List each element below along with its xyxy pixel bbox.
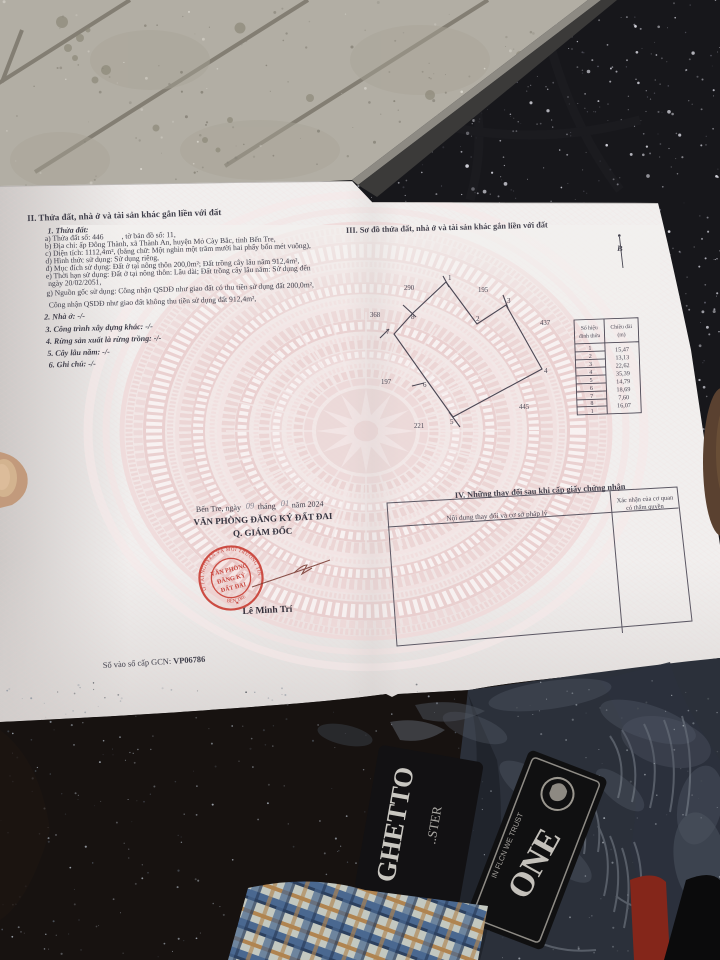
- svg-text:16,07: 16,07: [617, 402, 631, 409]
- svg-text:195: 195: [478, 287, 489, 294]
- svg-text:4: 4: [544, 367, 548, 375]
- svg-text:5: 5: [590, 378, 593, 384]
- svg-text:6: 6: [423, 381, 427, 389]
- svg-text:Chiều dài: Chiều dài: [610, 323, 632, 331]
- svg-text:8: 8: [411, 313, 415, 321]
- svg-text:445: 445: [519, 404, 530, 411]
- svg-text:7: 7: [386, 328, 390, 336]
- svg-text:Số hiệu: Số hiệu: [581, 324, 598, 332]
- svg-text:221: 221: [414, 423, 424, 430]
- svg-text:1: 1: [588, 346, 591, 352]
- svg-text:4: 4: [589, 370, 592, 376]
- svg-text:năm 2024: năm 2024: [292, 499, 324, 509]
- svg-text:18,69: 18,69: [616, 386, 630, 393]
- svg-text:22,62: 22,62: [616, 362, 630, 369]
- svg-text:3: 3: [507, 297, 511, 305]
- svg-text:3: 3: [589, 362, 592, 368]
- svg-text:01: 01: [280, 498, 289, 508]
- svg-text:5: 5: [450, 418, 454, 426]
- svg-text:đỉnh thửa: đỉnh thửa: [579, 333, 601, 340]
- svg-text:6. Ghi chú: -/-: 6. Ghi chú: -/-: [49, 359, 97, 369]
- svg-text:2: 2: [476, 315, 480, 323]
- svg-text:437: 437: [540, 320, 551, 327]
- svg-text:(m): (m): [617, 331, 625, 338]
- svg-text:368: 368: [370, 312, 381, 319]
- svg-text:197: 197: [381, 379, 392, 386]
- svg-text:7: 7: [590, 394, 593, 400]
- svg-text:15,47: 15,47: [615, 346, 629, 353]
- svg-text:8: 8: [590, 401, 593, 407]
- svg-text:14,79: 14,79: [616, 378, 630, 385]
- svg-text:6: 6: [590, 386, 593, 392]
- svg-text:290: 290: [404, 285, 415, 292]
- svg-text:13,13: 13,13: [615, 354, 629, 361]
- svg-text:7,60: 7,60: [618, 394, 629, 401]
- svg-text:09: 09: [246, 500, 256, 510]
- svg-text:1: 1: [448, 274, 452, 282]
- svg-text:2: 2: [589, 354, 592, 360]
- svg-text:35,39: 35,39: [616, 370, 630, 377]
- svg-text:tháng: tháng: [258, 501, 276, 511]
- svg-text:1: 1: [591, 409, 594, 415]
- svg-text:2. Nhà ở: -/-: 2. Nhà ở: -/-: [43, 311, 85, 321]
